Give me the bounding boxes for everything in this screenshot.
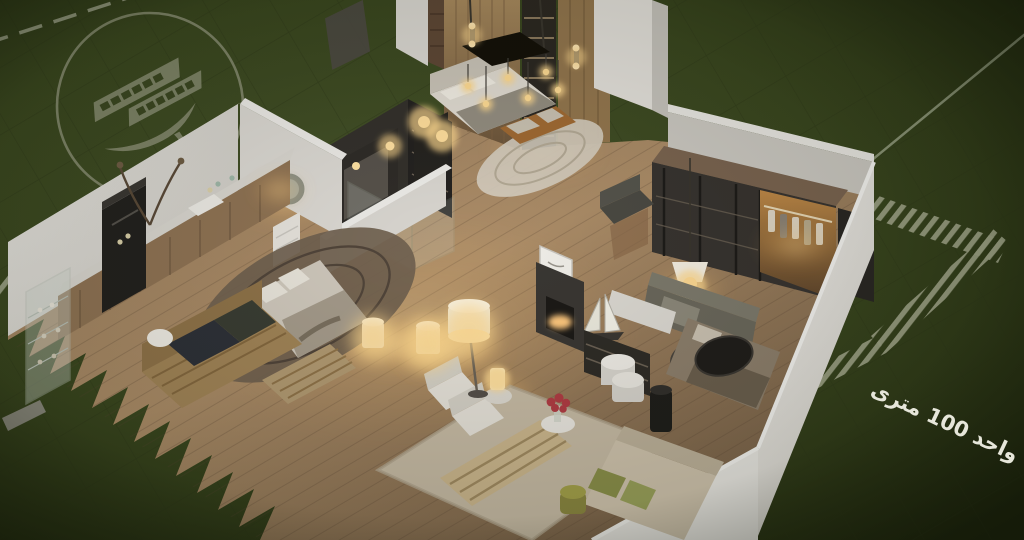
vignette-overlay [0, 0, 1024, 540]
apartment-3d-render: واحد 100 متری [0, 0, 1024, 540]
